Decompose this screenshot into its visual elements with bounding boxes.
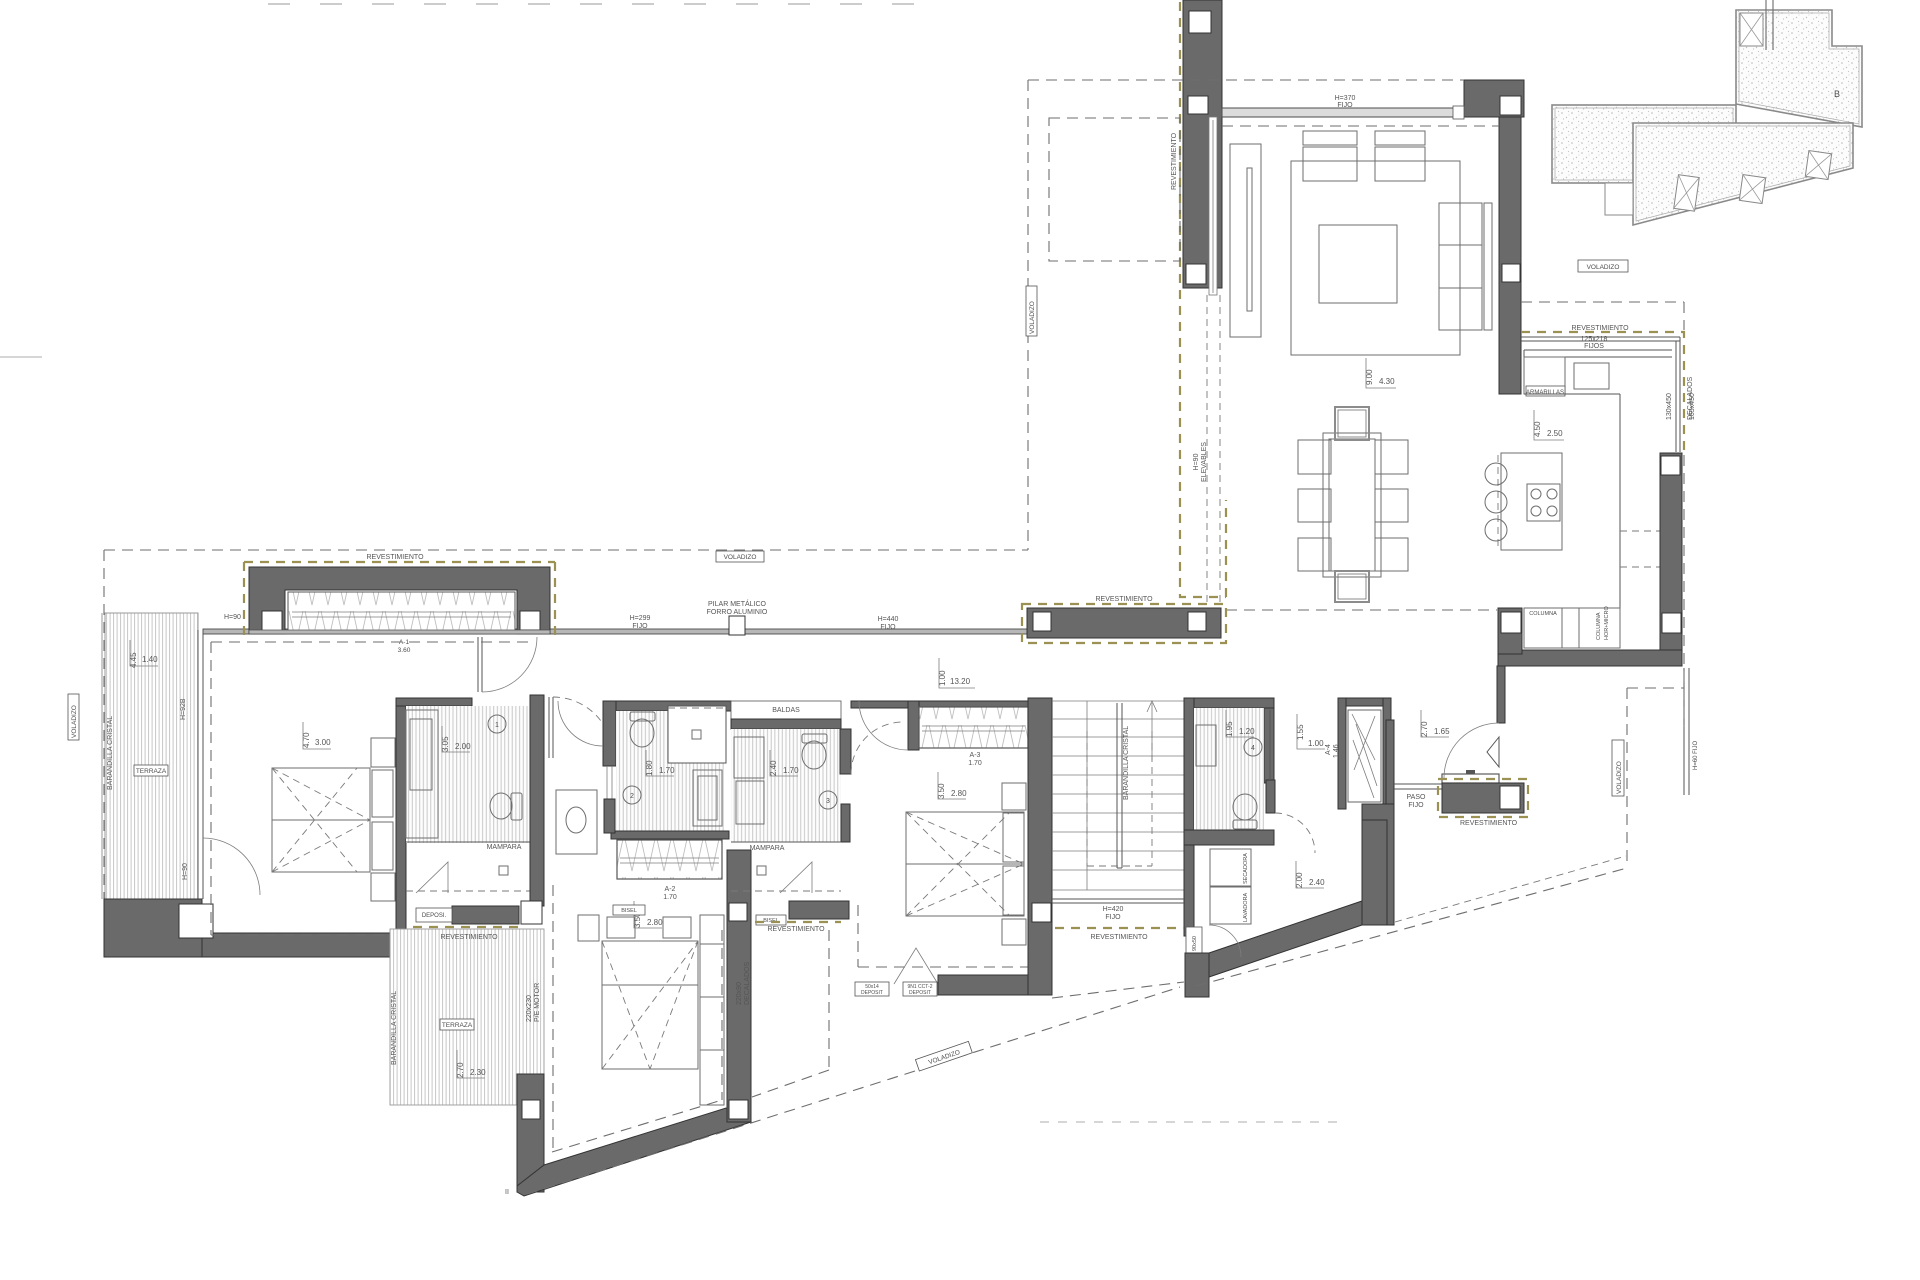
svg-text:2.40: 2.40 [1309,878,1325,887]
svg-text:B: B [1834,89,1840,99]
svg-text:1.70: 1.70 [968,760,982,767]
svg-text:2.50: 2.50 [1547,429,1563,438]
svg-text:REVESTIMIENTO: REVESTIMIENTO [1090,934,1148,941]
svg-text:1: 1 [495,722,499,729]
svg-text:PASO: PASO [1407,794,1426,801]
svg-text:1.40: 1.40 [142,655,158,664]
svg-text:MAMPARA: MAMPARA [750,845,785,852]
svg-text:BARANDILLA CRISTAL: BARANDILLA CRISTAL [107,716,114,790]
svg-text:H=420: H=420 [1103,906,1124,913]
svg-text:H=92B: H=92B [180,698,187,720]
svg-text:BARANDILLA CRISTAL: BARANDILLA CRISTAL [391,991,398,1065]
svg-text:COLUMNA: COLUMNA [1529,611,1557,617]
svg-text:DEPOSIT: DEPOSIT [909,990,931,996]
svg-text:REVESTIMIENTO: REVESTIMIENTO [366,554,424,561]
svg-text:P/E MOTOR: P/E MOTOR [534,983,541,1022]
svg-text:1.70: 1.70 [663,894,677,901]
svg-text:DEPOSI.: DEPOSI. [422,913,447,919]
svg-text:2.80: 2.80 [951,789,967,798]
svg-text:130x450: 130x450 [1666,393,1673,420]
svg-text:FIJO: FIJO [632,623,648,630]
svg-text:VOLADIZO: VOLADIZO [1029,301,1036,334]
svg-text:H=370: H=370 [1335,95,1356,102]
svg-text:BALDAS: BALDAS [772,707,800,714]
svg-text:220x90: 220x90 [736,982,743,1005]
svg-text:13.20: 13.20 [950,677,971,686]
svg-text:REVESTIMIENTO: REVESTIMIENTO [1095,596,1153,603]
svg-text:VOLADIZO: VOLADIZO [724,554,757,561]
svg-text:VOLADIZO: VOLADIZO [71,705,78,738]
svg-text:125x218: 125x218 [1581,336,1608,343]
svg-text:A-3: A-3 [970,752,981,759]
svg-text:HOR+MICRO: HOR+MICRO [1604,606,1610,640]
svg-text:A-2: A-2 [665,886,676,893]
svg-text:1.65: 1.65 [1434,727,1450,736]
svg-text:DEPOSIT: DEPOSIT [861,990,883,996]
svg-text:REVESTIMIENTO: REVESTIMIENTO [440,934,498,941]
svg-text:A-4: A-4 [1325,744,1332,755]
svg-text:REVESTIMIENTO: REVESTIMIENTO [767,926,825,933]
svg-text:3.60: 3.60 [398,647,411,654]
svg-text:FIJO: FIJO [1408,802,1424,809]
svg-text:SECADORA: SECADORA [1243,853,1249,884]
svg-text:FIJO: FIJO [880,624,896,631]
svg-text:4: 4 [1251,745,1255,752]
svg-text:VOLADIZO: VOLADIZO [1616,761,1623,794]
svg-text:1.70: 1.70 [783,766,799,775]
svg-text:MAMPARA: MAMPARA [487,844,522,851]
svg-text:REVESTIMIENTO: REVESTIMIENTO [1171,132,1178,190]
svg-text:BISEL: BISEL [621,908,637,914]
svg-text:DECALADOS: DECALADOS [744,961,751,1005]
svg-text:TERRAZA: TERRAZA [442,1022,473,1029]
svg-text:90x50: 90x50 [1192,936,1198,951]
svg-text:4.30: 4.30 [1379,377,1395,386]
svg-text:REVESTIMIENTO: REVESTIMIENTO [1460,820,1518,827]
svg-text:FIJOS: FIJOS [1584,343,1604,350]
svg-text:ARMARILLAS: ARMARILLAS [1526,390,1564,396]
svg-text:1.00: 1.00 [1308,739,1324,748]
svg-text:3.00: 3.00 [315,738,331,747]
svg-text:165x450: 165x450 [1689,393,1696,420]
svg-text:H=299: H=299 [630,615,651,622]
svg-text:H=90: H=90 [182,863,189,880]
svg-text:1.20: 1.20 [1239,727,1255,736]
svg-text:H=90: H=90 [1193,453,1200,470]
svg-text:H=60 FIJO: H=60 FIJO [1693,740,1699,770]
svg-text:COLUMNA: COLUMNA [1596,612,1602,640]
svg-text:TERRAZA: TERRAZA [136,768,167,775]
svg-text:3: 3 [826,798,830,805]
svg-text:VOLADIZO: VOLADIZO [1587,264,1620,271]
svg-text:FORRO ALUMINIO: FORRO ALUMINIO [707,609,768,616]
svg-text:2.00: 2.00 [455,742,471,751]
svg-text:REVESTIMIENTO: REVESTIMIENTO [1571,325,1629,332]
svg-text:2: 2 [630,793,634,800]
svg-text:ELEVABLES: ELEVABLES [1201,442,1208,482]
svg-text:FIJO: FIJO [1105,914,1121,921]
svg-text:1.70: 1.70 [659,766,675,775]
svg-text:BARANDILLA CRISTAL: BARANDILLA CRISTAL [1123,726,1130,800]
svg-text:PILAR METÁLICO: PILAR METÁLICO [708,599,767,608]
svg-text:H=440: H=440 [878,616,899,623]
svg-text:II: II [505,1189,509,1196]
svg-text:2.30: 2.30 [470,1068,486,1077]
svg-text:LAVADORA: LAVADORA [1243,893,1249,922]
svg-text:FIJO: FIJO [1337,102,1353,109]
svg-text:2.80: 2.80 [647,918,663,927]
svg-text:H=90: H=90 [224,614,241,621]
svg-text:220x230: 220x230 [526,995,533,1022]
svg-text:1.46: 1.46 [1333,744,1340,758]
